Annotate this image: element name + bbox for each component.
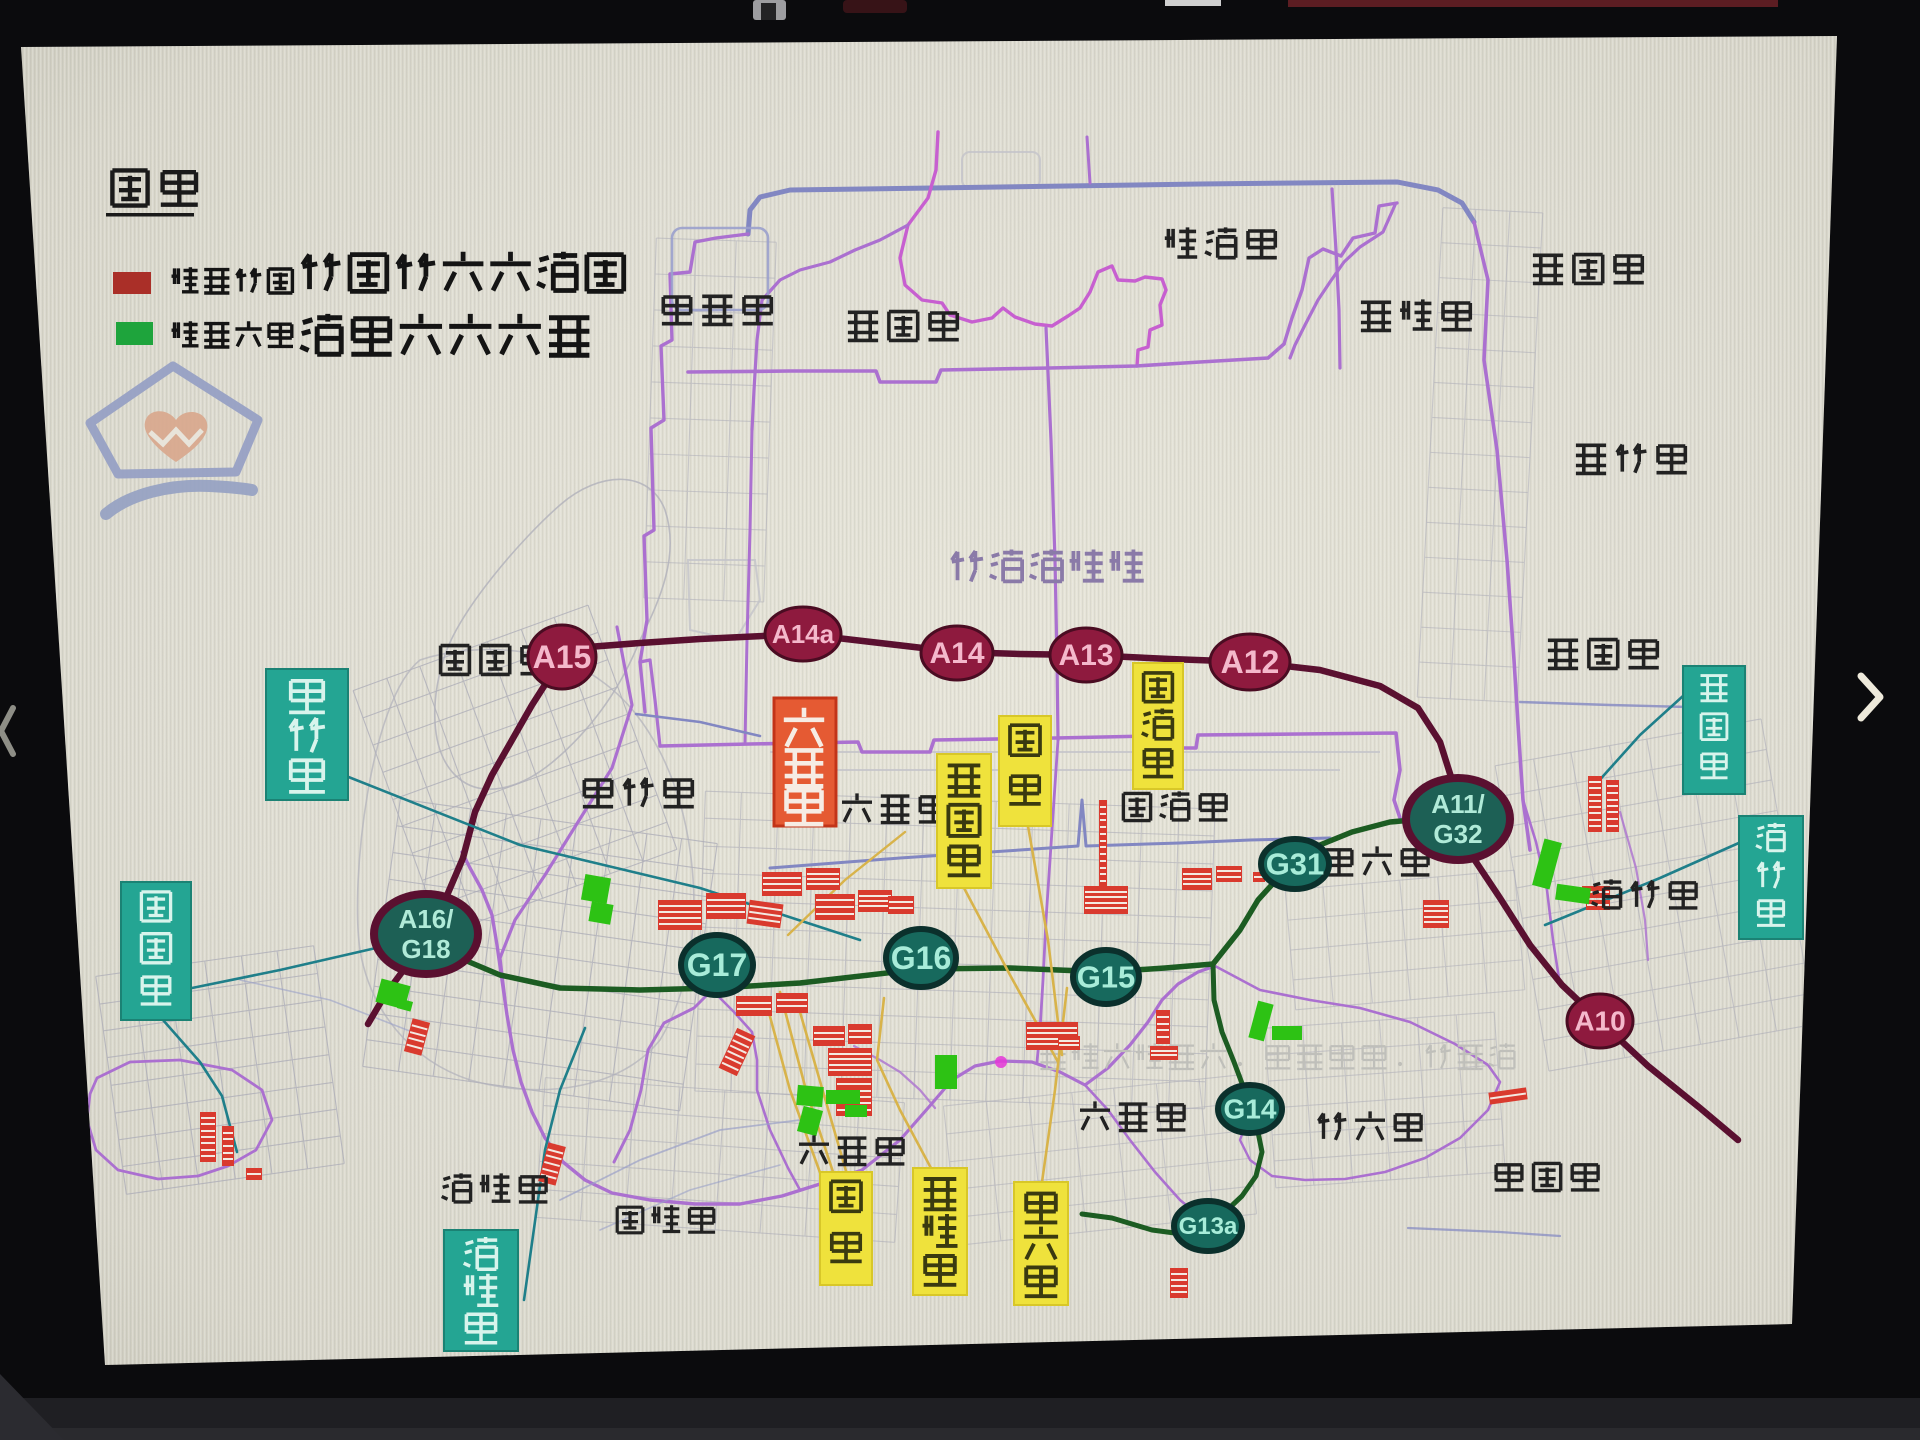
svg-text:G31: G31 [1266, 847, 1325, 882]
svg-text:A16/: A16/ [399, 904, 454, 934]
svg-text:G14: G14 [1224, 1094, 1277, 1125]
svg-text:G18: G18 [401, 934, 450, 964]
svg-text:G32: G32 [1433, 819, 1482, 849]
svg-text:A14: A14 [929, 637, 984, 670]
svg-text:G16: G16 [891, 940, 951, 976]
svg-text:G17: G17 [687, 947, 747, 983]
svg-text:G15: G15 [1077, 960, 1136, 995]
svg-text:G13a: G13a [1179, 1213, 1238, 1240]
svg-text:A13: A13 [1058, 639, 1113, 672]
svg-text:A11/: A11/ [1431, 789, 1485, 819]
svg-text:A10: A10 [1574, 1006, 1625, 1037]
svg-text:A14a: A14a [772, 619, 835, 649]
svg-text:A15: A15 [533, 639, 592, 675]
svg-text:A12: A12 [1221, 644, 1280, 680]
